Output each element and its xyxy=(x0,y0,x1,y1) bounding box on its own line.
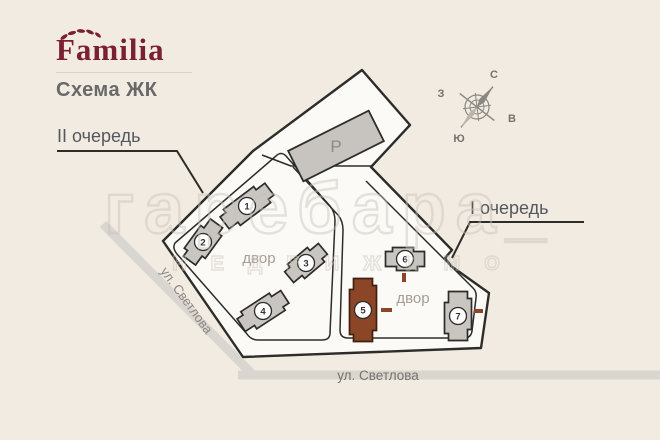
logo-divider xyxy=(56,72,192,73)
phase2-label: II очередь xyxy=(57,126,141,146)
logo-block: Familia Схема ЖК xyxy=(56,34,206,102)
compass-north: С xyxy=(490,69,498,81)
watermark-row2: НЕДВИЖИМО xyxy=(172,253,524,275)
watermark: гаребара_ НЕДВИЖИМО xyxy=(104,169,556,275)
site-plan-page: Р 1234567 двор двор ул. Светлова ул. Све… xyxy=(0,0,660,440)
compass-east: В xyxy=(508,113,516,125)
logo-leaf-icon xyxy=(58,26,110,42)
building-7-number: 7 xyxy=(455,312,460,323)
parking-label: Р xyxy=(330,137,341,156)
page-title: Схема ЖК xyxy=(56,79,206,102)
compass-rose-icon: С З В Ю xyxy=(438,69,516,145)
entrance-mark-3 xyxy=(474,309,483,313)
entrance-mark-2 xyxy=(381,308,392,312)
street-label-bottom: ул. Светлова xyxy=(337,368,419,383)
watermark-row1: гаребара_ xyxy=(104,169,556,249)
building-5[interactable]: 5 xyxy=(350,279,377,342)
building-7[interactable]: 7 xyxy=(445,292,472,341)
yard-label-right: двор xyxy=(396,290,429,307)
building-5-number: 5 xyxy=(360,306,366,317)
building-4-number: 4 xyxy=(260,307,266,318)
compass-south: Ю xyxy=(453,133,464,145)
compass-west: З xyxy=(438,88,445,100)
